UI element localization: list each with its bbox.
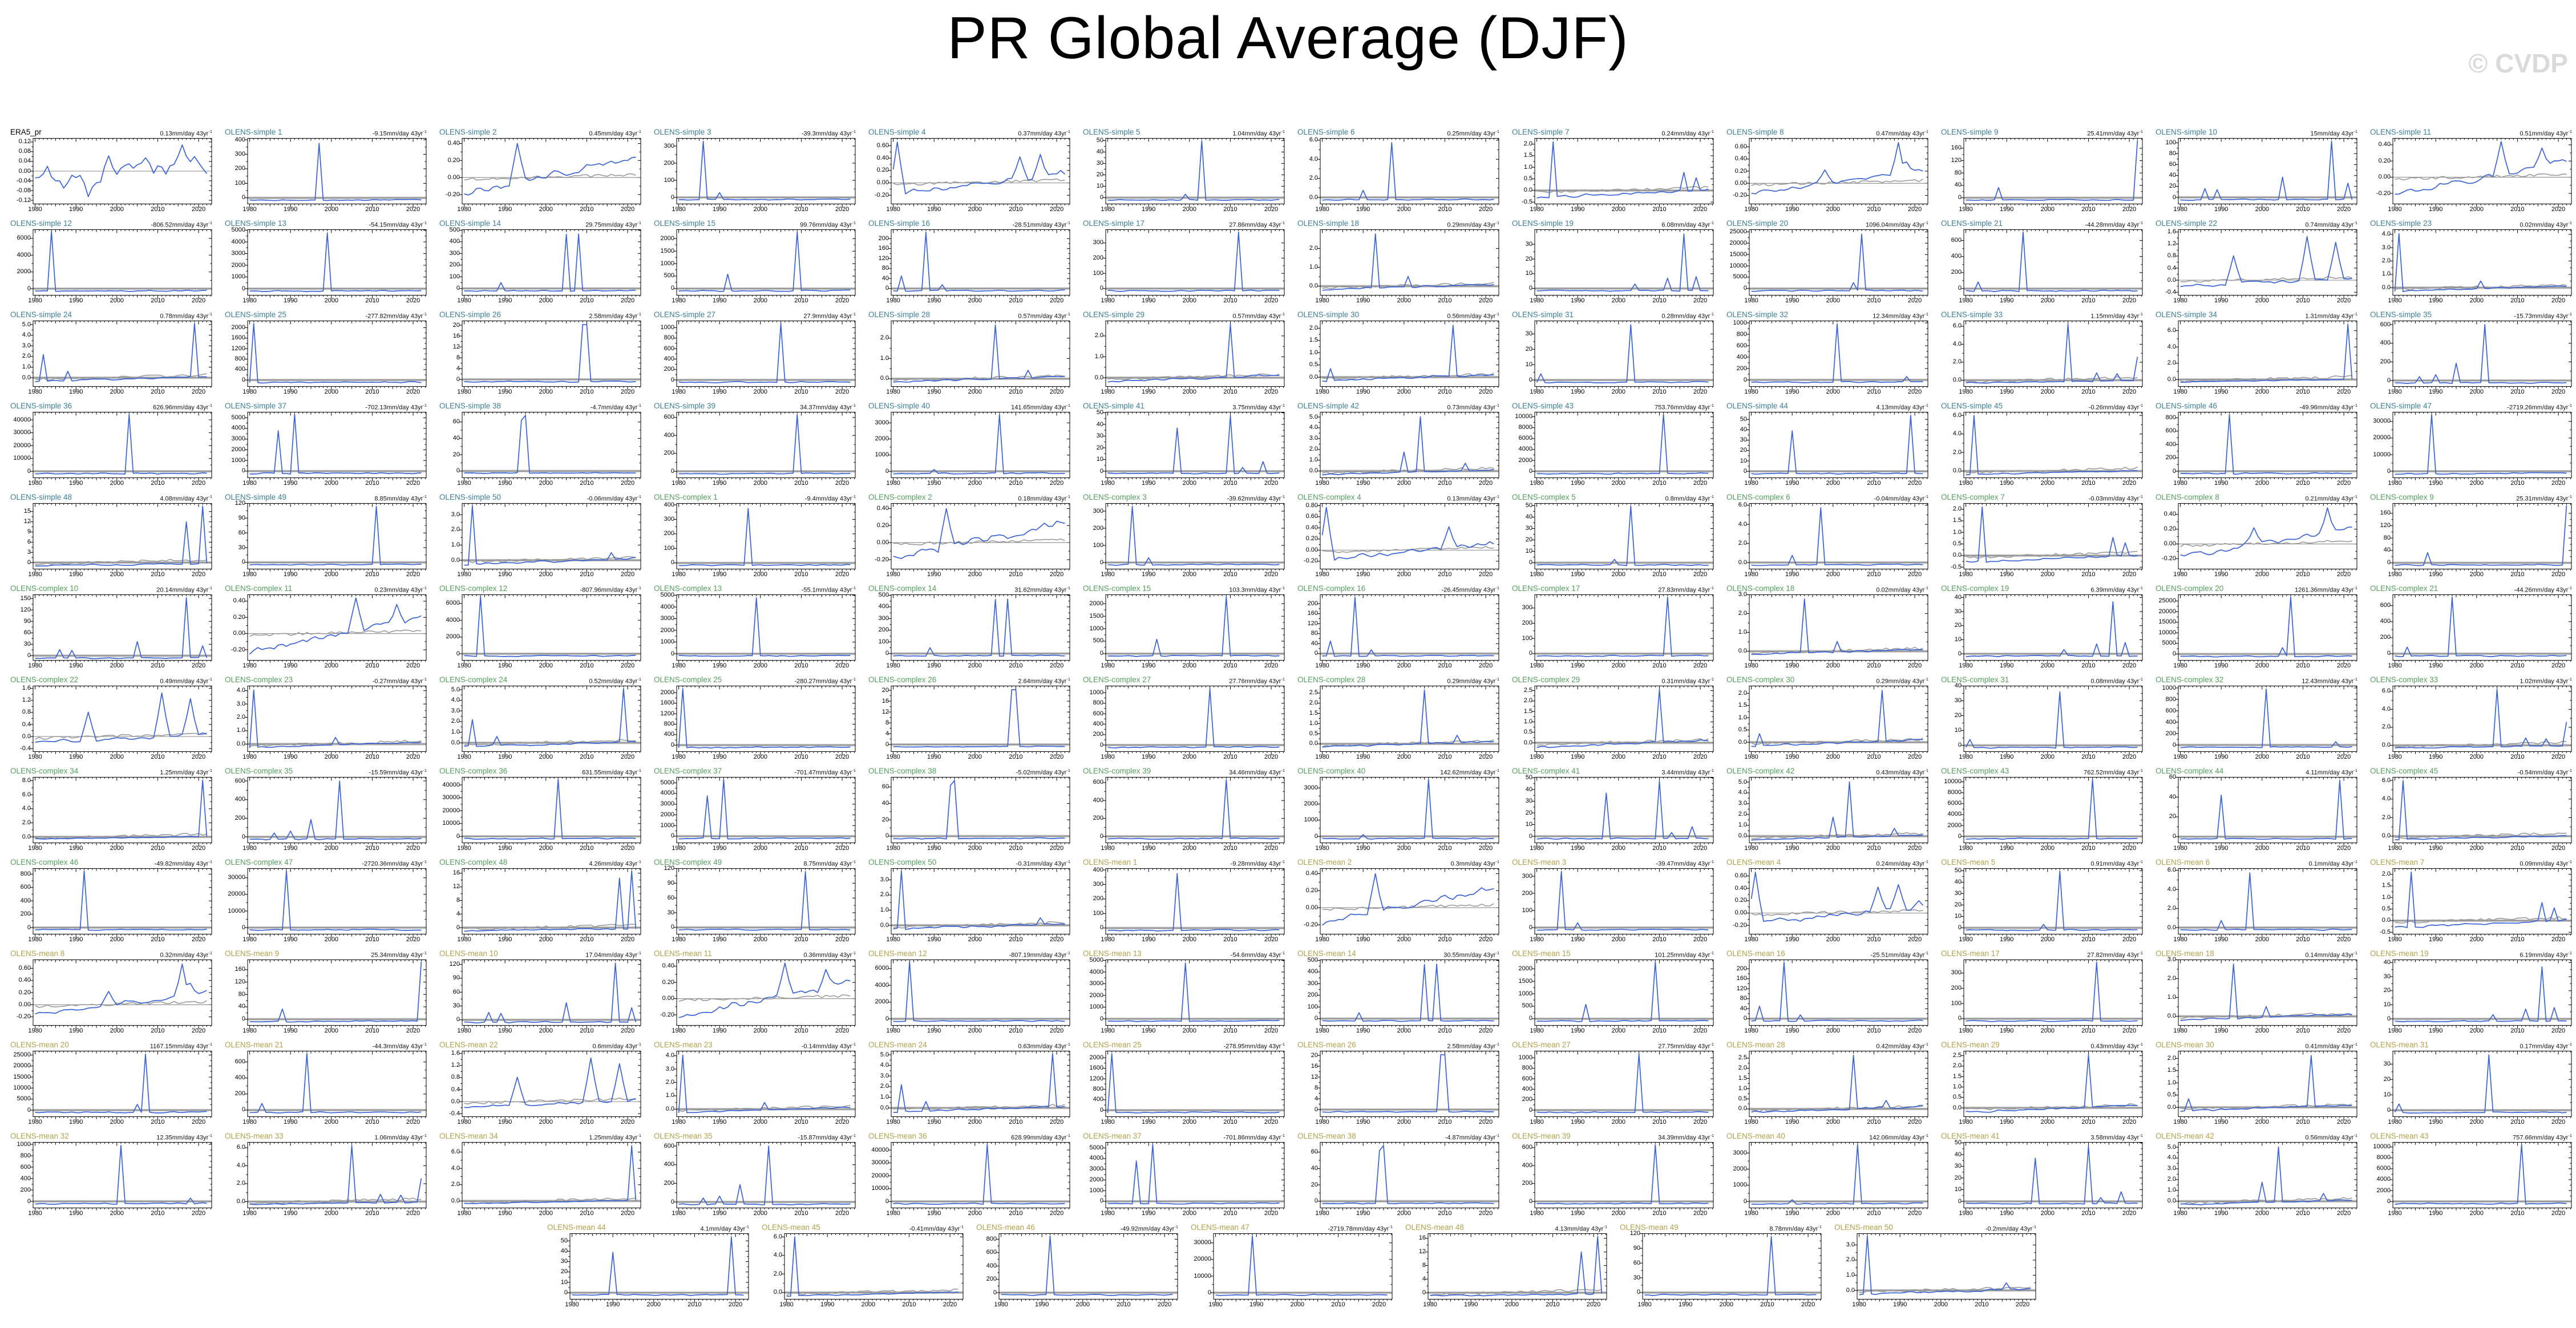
panel: OLENS-complex 341.25mm/day 43yr-18.06.04… — [0, 766, 215, 857]
x-tick-label: 1980 — [237, 388, 262, 395]
x-tick-label: 1980 — [1310, 662, 1335, 669]
plot-svg — [1530, 686, 1719, 757]
y-tick-label: 0 — [540, 1289, 568, 1296]
panel-title: OLENS-simple 25 — [225, 310, 286, 319]
x-tick-label: 2020 — [1259, 571, 1284, 578]
blue-series — [787, 1237, 959, 1296]
x-tick-label: 2010 — [359, 1119, 385, 1125]
x-tick-label: 2010 — [359, 571, 385, 578]
gray-series — [464, 1098, 636, 1104]
x-tick-label: 2000 — [1606, 571, 1631, 578]
plot-svg — [672, 503, 861, 574]
x-tick-label: 1990 — [1565, 662, 1590, 669]
y-tick-label: 400 — [3, 1175, 31, 1182]
blue-series — [679, 508, 851, 565]
y-tick-label: 0 — [2363, 468, 2391, 475]
y-tick-label: 0.5 — [2363, 905, 2391, 912]
y-tick-label: 0.0 — [1720, 832, 1747, 839]
y-tick-label: 2.5 — [1291, 689, 1318, 696]
y-tick-label: 100 — [1076, 910, 1103, 917]
x-tick-label: 1980 — [1203, 1301, 1228, 1308]
y-tick-label: 20 — [1505, 809, 1532, 816]
plot-frame — [1964, 960, 2142, 1026]
x-tick-label: 2020 — [1044, 754, 1069, 760]
y-tick-label: 20 — [1076, 444, 1103, 451]
x-tick-label: 1990 — [2423, 754, 2448, 760]
y-tick-label: 10 — [540, 1279, 568, 1286]
panel-plot — [248, 686, 427, 752]
y-tick-label: 0 — [1291, 1197, 1318, 1204]
y-tick-label: 1.5 — [2363, 882, 2391, 889]
y-tick-label: 3.0 — [1720, 800, 1747, 807]
x-tick-label: 2000 — [748, 845, 773, 852]
y-tick-label: 10 — [1076, 456, 1103, 463]
x-tick-label: 2000 — [1821, 1210, 1846, 1217]
panel-trend-label: -9.28mm/day 43yr-1 — [1231, 859, 1285, 868]
x-tick-label: 2020 — [2331, 388, 2356, 395]
x-tick-label: 2020 — [186, 206, 211, 213]
panel-trend-label: 6.08mm/day 43yr-1 — [1661, 220, 1714, 229]
panel: OLENS-simple 40.37mm/day 43yr-10.600.400… — [858, 127, 1073, 218]
blue-series — [1966, 602, 2138, 657]
x-tick-label: 2020 — [2546, 1027, 2571, 1034]
x-tick-label: 2020 — [1259, 1119, 1284, 1125]
x-tick-label: 2020 — [1473, 1210, 1498, 1217]
plot-frame — [2178, 869, 2357, 934]
x-tick-label: 2020 — [401, 480, 426, 487]
y-tick-label: 80 — [1934, 169, 1962, 176]
panel-title: OLENS-simple 22 — [2156, 219, 2217, 228]
y-tick-label: 2.0 — [1934, 358, 1962, 365]
plot-frame — [462, 412, 641, 478]
blue-series — [464, 779, 636, 839]
x-tick-label: 1980 — [666, 1119, 691, 1125]
blue-series — [679, 141, 851, 200]
panel: OLENS-complex 23-0.27mm/day 43yr-14.03.0… — [215, 674, 429, 766]
panel-title: OLENS-mean 37 — [1083, 1132, 1142, 1140]
x-tick-label: 2010 — [1111, 1301, 1136, 1308]
x-tick-label: 2000 — [104, 297, 130, 304]
y-tick-label: 50 — [540, 1237, 568, 1244]
y-tick-label: 300 — [1076, 508, 1103, 515]
y-tick-label: 0.8 — [3, 708, 31, 715]
x-tick-label: 1990 — [492, 936, 517, 943]
x-tick-label: 2000 — [1821, 845, 1846, 852]
x-tick-label: 1990 — [707, 754, 732, 760]
blue-series — [464, 1145, 636, 1204]
x-tick-label: 1980 — [2168, 571, 2193, 578]
x-tick-label: 2020 — [2331, 297, 2356, 304]
x-tick-label: 2000 — [1928, 1301, 1954, 1308]
y-tick-label: 0 — [3, 924, 31, 931]
y-tick-label: 2.0 — [432, 1181, 460, 1188]
x-tick-label: 1980 — [23, 1119, 48, 1125]
y-tick-label: 2.5 — [1934, 1052, 1962, 1059]
x-tick-label: 1980 — [1095, 297, 1121, 304]
x-tick-label: 1990 — [707, 1210, 732, 1217]
x-tick-label: 2020 — [2546, 206, 2571, 213]
y-tick-label: 0.0 — [432, 1197, 460, 1204]
blue-series — [250, 690, 422, 748]
x-tick-label: 1980 — [881, 297, 906, 304]
panel-trend-label: -4.87mm/day 43yr-1 — [1445, 1133, 1499, 1141]
plot-frame — [2393, 412, 2571, 478]
blue-series — [1108, 689, 1280, 748]
y-tick-label: 200 — [1505, 1180, 1532, 1187]
panel-trend-label: 0.32mm/day 43yr-1 — [160, 950, 212, 959]
y-tick-label: 20 — [540, 1268, 568, 1275]
panel-trend-label: -39.3mm/day 43yr-1 — [802, 129, 856, 137]
y-tick-label: 400 — [2363, 618, 2391, 625]
panel-trend-label: 1.15mm/day 43yr-1 — [2090, 311, 2143, 320]
y-tick-label: 5000 — [1076, 1144, 1103, 1151]
x-tick-label: 2010 — [1003, 845, 1028, 852]
y-tick-label: 40 — [2363, 546, 2391, 553]
panel-title: OLENS-simple 34 — [2156, 310, 2217, 319]
x-tick-label: 2010 — [145, 388, 170, 395]
panel-plot — [1320, 686, 1499, 752]
x-tick-label: 2000 — [856, 1301, 881, 1308]
x-tick-label: 1990 — [63, 1027, 88, 1034]
plot-frame — [1535, 321, 1713, 387]
x-tick-label: 1990 — [1780, 297, 1805, 304]
y-tick-label: 0.40 — [1720, 885, 1747, 892]
x-tick-label: 2010 — [1218, 662, 1243, 669]
x-tick-label: 1980 — [1524, 1210, 1550, 1217]
y-tick-label: 60 — [1613, 1260, 1640, 1266]
panel-trend-label: -39.47mm/day 43yr-1 — [1656, 859, 1714, 868]
y-tick-label: -0.5 — [2363, 929, 2391, 936]
y-tick-label: 60 — [432, 418, 460, 425]
y-tick-label: 200 — [1291, 600, 1318, 607]
panel-trend-label: -44.3mm/day 43yr-1 — [373, 1042, 427, 1050]
x-tick-label: 2020 — [1152, 1301, 1177, 1308]
plot-frame — [1535, 960, 1713, 1026]
x-tick-label: 2020 — [830, 936, 855, 943]
y-tick-label: 20 — [862, 816, 889, 823]
x-tick-label: 1990 — [278, 1119, 303, 1125]
panel-plot — [999, 1233, 1178, 1299]
x-tick-label: 2000 — [319, 1210, 344, 1217]
panel: OLENS-mean 15101.25mm/day 43yr-120001500… — [1502, 948, 1716, 1039]
panel-plot — [248, 138, 427, 204]
plot-svg — [2173, 321, 2363, 392]
y-tick-label: 0.0 — [2149, 1104, 2176, 1111]
y-tick-label: 90 — [3, 618, 31, 625]
panel-plot — [1964, 868, 2143, 934]
panel: OLENS-mean 240.63mm/day 43yr-15.04.03.02… — [858, 1039, 1073, 1131]
blue-series — [1537, 414, 1709, 474]
y-tick-label: 600 — [2149, 707, 2176, 714]
y-tick-label: 0.60 — [1291, 513, 1318, 520]
panel: OLENS-mean 16-25.51mm/day 43yr-120016012… — [1716, 948, 1931, 1039]
blue-series — [2181, 1055, 2352, 1111]
panel: OLENS-simple 70.24mm/day 43yr-12.01.51.0… — [1502, 127, 1716, 218]
panel-trend-label: 1.25mm/day 43yr-1 — [589, 1133, 641, 1141]
y-tick-label: 0 — [218, 558, 245, 565]
x-tick-label: 1990 — [921, 845, 947, 852]
plot-svg — [28, 138, 217, 209]
x-tick-label: 1990 — [707, 206, 732, 213]
panel-trend-label: -702.13mm/day 43yr-1 — [365, 403, 427, 411]
y-tick-label: 2000 — [218, 446, 245, 453]
x-tick-label: 1990 — [1994, 206, 2019, 213]
plot-frame — [1749, 412, 1928, 478]
x-tick-label: 2010 — [1432, 754, 1457, 760]
x-tick-label: 1990 — [1994, 388, 2019, 395]
panel-trend-label: 0.31mm/day 43yr-1 — [1661, 677, 1714, 685]
plot-svg — [886, 229, 1075, 301]
x-tick-label: 1980 — [452, 388, 477, 395]
axis-ticks — [1317, 869, 1499, 938]
x-tick-label: 2010 — [2076, 1210, 2101, 1217]
x-tick-label: 2010 — [682, 1301, 707, 1308]
panel-trend-label: 2.58mm/day 43yr-1 — [589, 311, 641, 320]
panel: OLENS-simple 1-9.15mm/day 43yr-140030020… — [215, 127, 429, 218]
plot-svg — [779, 1233, 969, 1305]
y-tick-label: 0.0 — [862, 375, 889, 382]
x-tick-label: 1990 — [2209, 662, 2234, 669]
x-tick-label: 1990 — [63, 662, 88, 669]
x-tick-label: 1990 — [707, 571, 732, 578]
blue-series — [250, 507, 422, 565]
y-tick-label: 6000 — [1505, 435, 1532, 442]
panel: OLENS-complex 1431.62mm/day 43yr-1500400… — [858, 583, 1073, 674]
plot-frame — [677, 504, 855, 569]
y-tick-label: 0.20 — [3, 989, 31, 996]
x-tick-label: 1980 — [452, 1119, 477, 1125]
panel-plot — [1106, 503, 1285, 569]
x-tick-label: 1990 — [278, 206, 303, 213]
x-tick-label: 1980 — [237, 662, 262, 669]
y-tick-label: 0.60 — [1720, 143, 1747, 150]
axis-ticks — [1746, 869, 1928, 938]
panel-plot — [1964, 503, 2143, 569]
blue-series — [893, 961, 1065, 1021]
x-tick-label: 2010 — [359, 845, 385, 852]
y-tick-label: 0 — [218, 467, 245, 474]
blue-series — [1108, 141, 1280, 200]
y-tick-label: 1600 — [1076, 1064, 1103, 1071]
panel: OLENS-complex 331.02mm/day 43yr-16.04.02… — [2360, 674, 2574, 766]
x-tick-label: 2010 — [1218, 1027, 1243, 1034]
plot-frame — [1749, 230, 1928, 295]
y-tick-label: 200 — [647, 366, 674, 373]
y-tick-label: 0 — [2149, 742, 2176, 748]
plot-svg — [672, 1051, 861, 1122]
panel: OLENS-mean 3212.35mm/day 43yr-1100080060… — [0, 1131, 215, 1222]
x-tick-label: 2000 — [319, 936, 344, 943]
x-tick-label: 2020 — [723, 1301, 748, 1308]
y-tick-label: -0.20 — [862, 192, 889, 199]
y-tick-label: 0.0 — [1720, 1105, 1747, 1112]
panel-plot — [891, 1142, 1070, 1208]
x-tick-label: 2000 — [2035, 480, 2060, 487]
x-tick-label: 1990 — [2209, 754, 2234, 760]
y-tick-label: 600 — [1720, 342, 1747, 349]
blue-series — [2181, 689, 2352, 748]
y-tick-label: 0.0 — [2149, 376, 2176, 383]
x-tick-label: 2020 — [2117, 936, 2142, 943]
x-tick-label: 1980 — [1095, 754, 1121, 760]
panel: OLENS-complex 6-0.04mm/day 43yr-16.04.02… — [1716, 492, 1931, 583]
x-tick-label: 2010 — [2505, 754, 2530, 760]
x-tick-label: 1990 — [1780, 206, 1805, 213]
y-tick-label: 1.0 — [3, 363, 31, 370]
x-tick-label: 2000 — [1606, 936, 1631, 943]
panel-title: OLENS-mean 45 — [762, 1223, 820, 1232]
plot-svg — [2388, 229, 2576, 301]
y-tick-label: 80 — [2363, 535, 2391, 541]
x-tick-label: 2020 — [401, 936, 426, 943]
y-tick-label: 6.0 — [1934, 412, 1962, 419]
panel-title: OLENS-simple 37 — [225, 402, 286, 410]
x-tick-label: 1990 — [63, 297, 88, 304]
plot-frame — [462, 321, 641, 387]
blue-series — [1752, 143, 1923, 194]
panel-title: OLENS-complex 50 — [868, 858, 936, 867]
y-tick-label: 2000 — [647, 689, 674, 696]
x-tick-label: 2010 — [1003, 1119, 1028, 1125]
panel-trend-label: -5.02mm/day 43yr-1 — [1016, 768, 1070, 776]
blue-series — [1323, 690, 1494, 747]
x-tick-label: 2020 — [401, 845, 426, 852]
x-tick-label: 1990 — [1780, 662, 1805, 669]
panel-trend-label: 27.75mm/day 43yr-1 — [1658, 1042, 1714, 1050]
panel-plot — [891, 503, 1070, 569]
x-tick-label: 1980 — [237, 936, 262, 943]
x-tick-label: 1980 — [1524, 480, 1550, 487]
panel-trend-label: -806.52mm/day 43yr-1 — [151, 220, 212, 229]
plot-frame — [891, 139, 1070, 204]
panel-plot — [2178, 503, 2357, 569]
panel-trend-label: 31.62mm/day 43yr-1 — [1014, 585, 1070, 594]
y-tick-label: 0.0 — [1720, 559, 1747, 566]
blue-series — [1537, 962, 1709, 1022]
y-tick-label: 400 — [2149, 719, 2176, 726]
x-tick-label: 2010 — [1003, 206, 1028, 213]
y-tick-label: 200 — [1076, 815, 1103, 821]
y-tick-label: 0 — [647, 468, 674, 475]
y-tick-label: 20000 — [432, 807, 460, 814]
x-tick-label: 2020 — [830, 571, 855, 578]
y-tick-label: 160 — [1291, 610, 1318, 617]
x-tick-label: 1980 — [1095, 1210, 1121, 1217]
panel-title: OLENS-mean 1 — [1083, 858, 1137, 867]
y-tick-label: 0.0 — [2149, 1013, 2176, 1019]
x-tick-label: 2000 — [2464, 297, 2489, 304]
panel-plot — [1535, 959, 1714, 1026]
plot-svg — [28, 686, 217, 757]
panel-title: OLENS-mean 6 — [2156, 858, 2210, 867]
y-tick-label: 8000 — [1505, 424, 1532, 431]
panel-plot — [1535, 229, 1714, 295]
x-tick-label: 2000 — [2035, 1027, 2060, 1034]
y-tick-label: 40 — [1720, 426, 1747, 433]
x-tick-label: 2000 — [533, 1119, 559, 1125]
y-tick-label: 0.0 — [3, 833, 31, 840]
plot-frame — [1320, 1051, 1499, 1117]
panel: OLENS-complex 290.31mm/day 43yr-12.52.01… — [1502, 674, 1716, 766]
y-tick-label: 4000 — [862, 982, 889, 989]
x-tick-label: 2010 — [2290, 754, 2315, 760]
panel-title: OLENS-simple 20 — [1726, 219, 1788, 228]
x-tick-label: 1980 — [452, 206, 477, 213]
panel: OLENS-mean 925.34mm/day 43yr-11601208040… — [215, 948, 429, 1039]
y-tick-label: 0.60 — [1720, 872, 1747, 879]
x-tick-label: 2020 — [830, 845, 855, 852]
plot-frame — [1106, 960, 1284, 1026]
x-tick-label: 2020 — [2546, 1210, 2571, 1217]
y-tick-label: 2.0 — [3, 819, 31, 826]
panel-trend-label: 0.47mm/day 43yr-1 — [1876, 129, 1928, 137]
panel-plot — [1964, 1142, 2143, 1208]
x-tick-label: 2020 — [2331, 206, 2356, 213]
panel-trend-label: 0.08mm/day 43yr-1 — [2090, 677, 2143, 685]
y-tick-label: 15000 — [1720, 251, 1747, 258]
panel: OLENS-mean 12-807.19mm/day 43yr-16000400… — [858, 948, 1073, 1039]
plot-frame — [248, 1051, 426, 1117]
y-tick-label: 200 — [1505, 1096, 1532, 1103]
panel: OLENS-complex 37-701.47mm/day 43yr-15000… — [644, 766, 858, 857]
plot-frame — [891, 504, 1070, 569]
plot-frame — [33, 1143, 212, 1208]
y-tick-label: 0.0 — [432, 739, 460, 746]
x-tick-label: 1980 — [1310, 388, 1335, 395]
panel-title: OLENS-complex 26 — [868, 675, 936, 684]
y-tick-label: 0 — [647, 559, 674, 566]
panel-title: OLENS-mean 11 — [654, 949, 712, 958]
x-tick-label: 2020 — [1688, 754, 1713, 760]
y-tick-label: 10 — [1505, 361, 1532, 368]
plot-svg — [2388, 686, 2576, 757]
panel-plot — [891, 138, 1070, 204]
y-tick-label: 0.00 — [218, 630, 245, 637]
blue-series — [1001, 1236, 1173, 1295]
panel: OLENS-simple 498.85mm/day 43yr-112090603… — [215, 492, 429, 583]
x-tick-label: 2010 — [1003, 1027, 1028, 1034]
panel-plot — [1535, 777, 1714, 843]
x-tick-label: 1980 — [1310, 1119, 1335, 1125]
x-tick-label: 1980 — [2168, 936, 2193, 943]
panel: OLENS-mean 180.14mm/day 43yr-13.02.01.00… — [2145, 948, 2360, 1039]
y-tick-label: 60 — [2149, 774, 2176, 780]
panel-plot — [462, 321, 641, 387]
plot-svg — [672, 321, 861, 392]
y-tick-label: 400 — [218, 1074, 245, 1081]
y-tick-label: -0.5 — [1505, 199, 1532, 205]
y-tick-label: 5000 — [1720, 273, 1747, 280]
blue-series — [35, 780, 207, 839]
y-tick-label: 0.00 — [432, 174, 460, 181]
panel-plot — [1964, 686, 2143, 752]
panel-plot — [1320, 138, 1499, 204]
x-tick-label: 2010 — [2076, 297, 2101, 304]
plot-frame — [1106, 412, 1284, 478]
x-tick-label: 2010 — [1432, 297, 1457, 304]
x-tick-label: 2020 — [1259, 1027, 1284, 1034]
y-tick-label: 0 — [1934, 742, 1962, 748]
panel-title: OLENS-mean 47 — [1191, 1223, 1249, 1232]
blue-series — [35, 1145, 207, 1204]
y-tick-label: 0.0 — [1291, 740, 1318, 747]
plot-svg — [886, 777, 1075, 848]
y-tick-label: 400 — [647, 432, 674, 439]
x-tick-label: 2020 — [830, 754, 855, 760]
panel-title: OLENS-complex 35 — [225, 767, 293, 775]
panel-plot — [1535, 1142, 1714, 1208]
x-tick-label: 2020 — [1473, 1119, 1498, 1125]
